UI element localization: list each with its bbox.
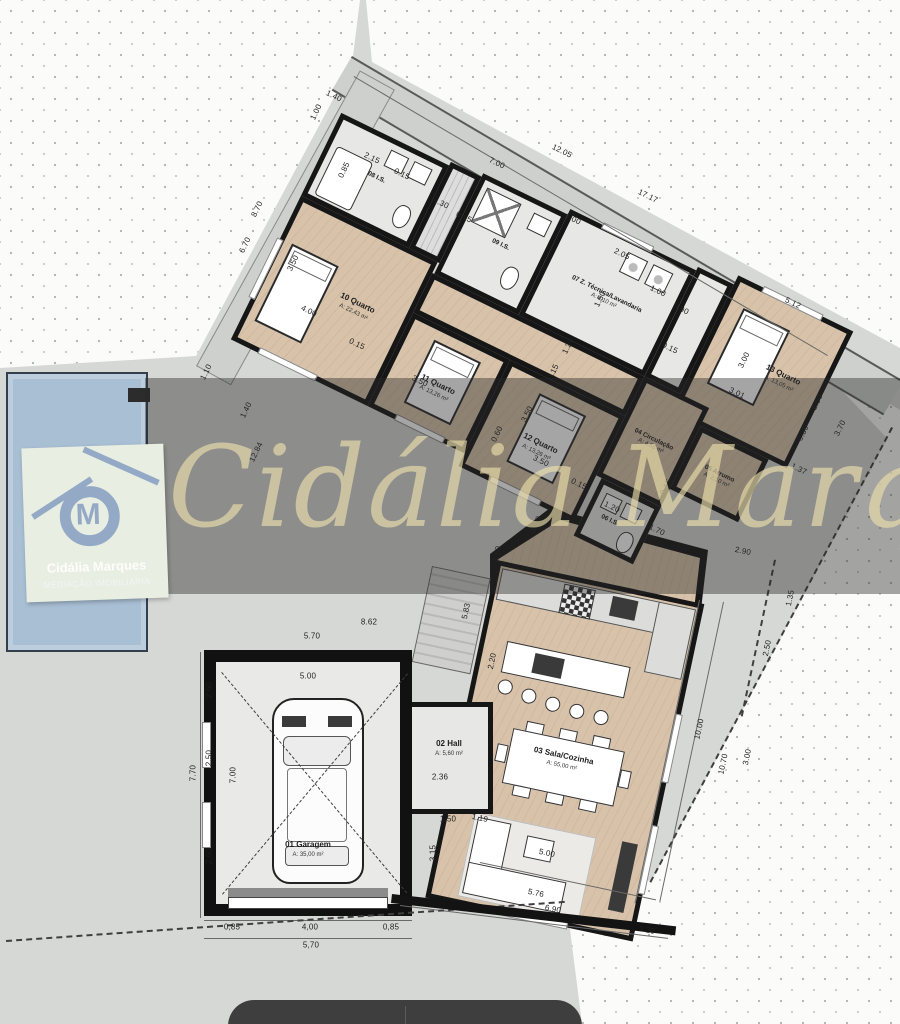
sink-icon xyxy=(526,213,552,238)
stool-icon xyxy=(592,709,610,727)
dimension-line xyxy=(204,938,412,939)
agency-logo: M Cidália Marques MEDIAÇÃO IMOBILIÁRIA xyxy=(21,444,168,603)
room-label: 08 I.S. xyxy=(367,170,387,185)
toilet-icon xyxy=(496,264,522,293)
chair-icon xyxy=(545,791,565,806)
dimension-label: 4,00 xyxy=(302,923,318,932)
dimension-label: 1,50 xyxy=(440,815,456,824)
room-label: 09 I.S. xyxy=(491,237,511,252)
room-area: A: 5,60 m² xyxy=(435,751,463,757)
stool-icon xyxy=(520,687,538,705)
window-icon xyxy=(202,802,211,848)
room-label: 01 Garagem xyxy=(285,840,331,849)
dimension-label: 2.60 xyxy=(205,682,214,698)
logo-m-letter: M xyxy=(75,498,101,533)
garage-door-sill xyxy=(228,897,388,909)
roof-icon xyxy=(82,447,159,486)
room-hall-02: 02 Hall A: 5,60 m² xyxy=(405,702,493,814)
kitchen-island xyxy=(501,641,631,698)
dimension-label: 3.15 xyxy=(429,845,438,861)
dimension-line xyxy=(200,652,201,918)
headlight-icon xyxy=(282,716,306,727)
room-label: 02 Hall xyxy=(436,739,462,748)
logo-name: Cidália Marques xyxy=(25,557,167,577)
dimension-label: 5,70 xyxy=(303,941,319,950)
dimension-label: 0,85 xyxy=(383,923,399,932)
watermark-script-text: Cidália Marques xyxy=(168,408,900,598)
stool-icon xyxy=(568,702,586,720)
stool-icon xyxy=(496,678,514,696)
logo-tagline: MEDIAÇÃO IMOBILIÁRIA xyxy=(26,575,168,590)
dimension-label: 7.00 xyxy=(229,767,238,783)
floor-plan-canvas: 08 I.S. 09 I.S. 07 Z. Técnica/Lavandaria… xyxy=(0,0,900,1024)
dimension-label: 2.60 xyxy=(205,848,214,864)
dimension-label: 8.62 xyxy=(361,618,377,627)
chair-icon xyxy=(511,784,531,799)
stool-icon xyxy=(544,695,562,713)
toilet-icon xyxy=(388,202,414,231)
chair-icon xyxy=(578,799,598,814)
dimension-label: 5.70 xyxy=(304,632,320,641)
dimension-label: 0,85 xyxy=(224,923,240,932)
room-area: A: 35,00 m² xyxy=(292,852,323,858)
headlight-icon xyxy=(328,716,352,727)
dimension-label: 2.50 xyxy=(205,750,214,766)
dimension-label: 7.70 xyxy=(189,765,198,781)
dimension-label: 2.36 xyxy=(432,773,448,782)
garage-door xyxy=(228,888,388,897)
dimension-label: 10.00 xyxy=(692,718,705,740)
tv-unit-icon xyxy=(608,841,638,913)
dimension-label: 5.00 xyxy=(300,672,316,681)
driveway-car-top-view xyxy=(228,1000,582,1024)
